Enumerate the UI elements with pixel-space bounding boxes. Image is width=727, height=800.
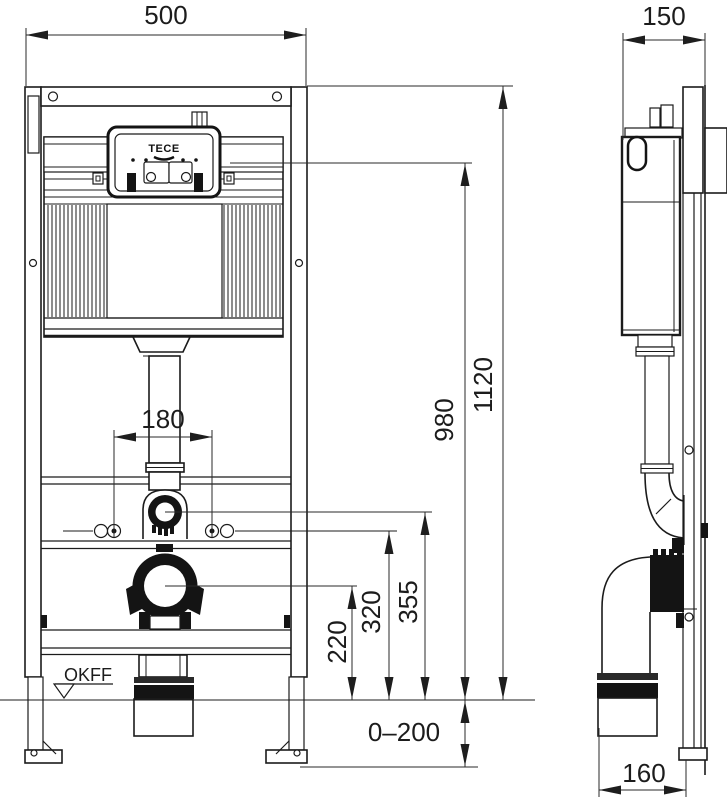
fixing-holes xyxy=(63,525,397,538)
rail-hole-right xyxy=(273,92,282,101)
drain-seal xyxy=(134,685,194,699)
flush-elbow-side xyxy=(645,473,684,553)
flush-pipe-side xyxy=(645,356,669,464)
rail-clip-right xyxy=(284,615,290,628)
dim-label-150: 150 xyxy=(642,1,685,31)
dim-label-1120: 1120 xyxy=(468,357,498,413)
dim-label-320: 320 xyxy=(356,590,386,633)
foot-plate-side xyxy=(679,748,707,760)
dim-label-0-200: 0–200 xyxy=(368,717,440,747)
water-inlet-fitting xyxy=(192,112,207,127)
tank-outlet-side xyxy=(638,335,672,347)
clip-right xyxy=(224,173,234,184)
dim-label-220: 220 xyxy=(322,620,352,663)
inspection-port-side xyxy=(628,137,646,170)
waste-outlet-front xyxy=(126,544,204,736)
foot-right xyxy=(289,677,304,750)
frame-upright-left xyxy=(25,87,41,677)
brand-logo: TECE xyxy=(148,143,179,155)
actuator-foot-right xyxy=(194,173,203,192)
dim-label-180: 180 xyxy=(141,404,184,434)
waste-bracket xyxy=(150,616,180,629)
drain-socket-side xyxy=(598,698,657,736)
dim-foot-adjustment: 0–200 xyxy=(300,700,478,767)
dim-label-980: 980 xyxy=(429,398,459,441)
frame-top-rail xyxy=(41,87,291,106)
floor-marker-label: OKFF xyxy=(64,665,112,685)
dim-label-160: 160 xyxy=(622,758,665,788)
insulation-ribs-left xyxy=(48,205,104,317)
drain-seal-side xyxy=(597,683,658,698)
drain-seal-top-side xyxy=(597,673,658,680)
floor-level-symbol xyxy=(54,684,74,698)
frame-upright-right xyxy=(291,87,307,677)
dim-drain-offset: 160 xyxy=(599,728,686,797)
rail-hole-side-upper xyxy=(685,446,693,454)
wc-fixing-block-side xyxy=(650,549,684,612)
drain-socket xyxy=(134,699,193,736)
cistern-outlet xyxy=(133,337,190,352)
valve-port-left xyxy=(147,173,156,182)
rail-clip-left xyxy=(41,615,47,628)
clip-left xyxy=(93,173,103,184)
foot-hole-right xyxy=(294,750,300,756)
dim-label-500: 500 xyxy=(144,0,187,30)
insulation-ribs-right xyxy=(224,205,280,317)
rail-hole-side-lower xyxy=(685,613,693,621)
upright-hole-right xyxy=(296,260,303,267)
wall-bracket-side xyxy=(705,128,727,193)
dim-label-355: 355 xyxy=(393,580,423,623)
frame-rail-side xyxy=(683,193,701,748)
foot-hole-left xyxy=(31,750,37,756)
foot-plate-left xyxy=(25,750,62,763)
dim-fixing-height: 320 xyxy=(356,532,394,701)
actuator-foot-left xyxy=(127,173,136,192)
valve-port-right xyxy=(182,173,191,182)
upright-hole-left xyxy=(30,260,37,267)
fixing-hole-outer-left xyxy=(95,525,108,538)
wall-bracket-front xyxy=(28,96,39,153)
fixing-hole-outer-right xyxy=(221,525,234,538)
rail-hole-left xyxy=(49,92,58,101)
cistern-side xyxy=(622,105,682,473)
side-view xyxy=(597,85,727,775)
foot-plate-right xyxy=(266,750,307,763)
floor-level: OKFF xyxy=(0,665,535,700)
wall-anchor-block xyxy=(701,523,708,538)
waste-bend-side xyxy=(597,557,658,736)
inlet-fitting-side xyxy=(650,108,660,127)
actuator-unit: TECE xyxy=(108,112,220,197)
cistern-access-panel xyxy=(107,204,222,318)
foot-left xyxy=(28,677,43,750)
dim-frame-width: 500 xyxy=(26,0,306,86)
drain-seal-top xyxy=(134,677,194,683)
technical-drawing: TECE xyxy=(0,0,727,800)
rail-clip-side xyxy=(676,613,684,628)
frame-rail-top-side xyxy=(683,87,703,193)
drawing-canvas: TECE xyxy=(0,0,727,800)
